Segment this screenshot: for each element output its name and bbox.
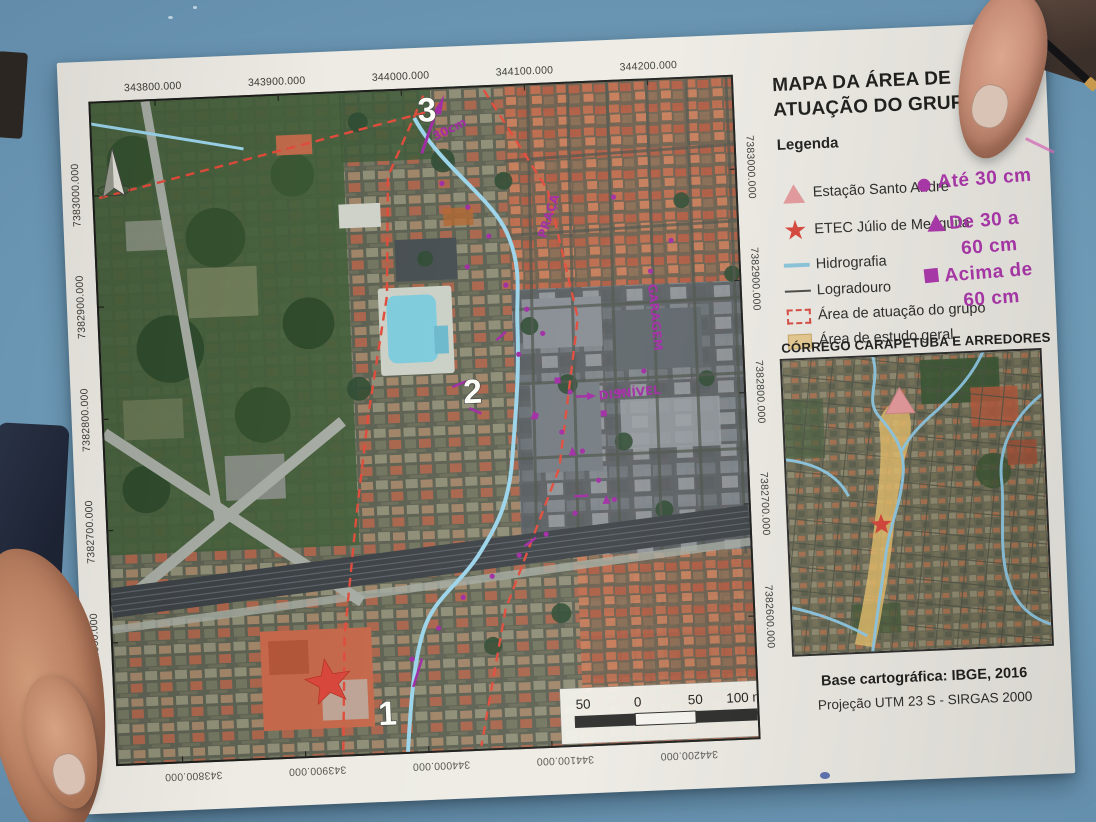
- legend-item-label: Logradouro: [817, 279, 892, 298]
- grid-label-left-3: 7382700.000: [83, 497, 98, 567]
- scale-label-1: 0: [634, 694, 642, 709]
- table-blue-mark: [820, 772, 830, 779]
- point-label-1: 1: [377, 695, 397, 734]
- grid-label-bottom-0: 343800.000: [158, 768, 228, 783]
- swimming-pool: [386, 294, 438, 364]
- grid-label-bottom-1: 343900.000: [282, 763, 352, 778]
- point-label-2: 2: [462, 373, 482, 412]
- grid-label-bottom-3: 344100.000: [530, 753, 600, 768]
- inset-map: [780, 348, 1054, 657]
- etec-star-icon: ★: [780, 220, 811, 241]
- dashed-area-icon: [784, 308, 815, 324]
- grid-label-left-0: 7383000.000: [69, 160, 84, 230]
- grid-label-top-4: 344200.000: [613, 59, 683, 74]
- grid-label-top-2: 344000.000: [365, 69, 435, 84]
- grid-label-top-1: 343900.000: [241, 74, 311, 89]
- legend-item-label: Área de atuação do grupo: [818, 300, 986, 323]
- grid-label-left-2: 7382800.000: [78, 385, 93, 455]
- hydrography-line-icon: [782, 263, 812, 268]
- legend-item-label: ETEC Júlio de Mesquita: [814, 215, 970, 237]
- grid-label-right-0: 7383000.000: [743, 132, 758, 202]
- cartographic-base-credit: Base cartográfica: IBGE, 2016: [793, 664, 1055, 691]
- main-map: 30cm PRAÇA GARAGEM DISNÍVEL 1 2 3: [88, 75, 760, 766]
- station-triangle-icon: [778, 183, 809, 203]
- map-margin-panel: MAPA DA ÁREA DE ATUAÇÃO DO GRUPO 2 Legen…: [757, 52, 1074, 773]
- table-speck: [193, 6, 197, 9]
- handwritten-note-1: Até 30 cm: [937, 165, 1033, 194]
- handwritten-square-icon: [924, 268, 939, 283]
- grid-label-bottom-2: 344000.000: [406, 758, 476, 773]
- grid-label-right-1: 7382900.000: [748, 244, 763, 314]
- table-dark-object: [0, 51, 28, 139]
- left-thumbnail: [48, 750, 89, 798]
- legend-item-label: Hidrografia: [815, 253, 887, 272]
- pen-tip: [1084, 76, 1096, 91]
- right-thumbnail: [967, 81, 1013, 132]
- grid-label-right-2: 7382800.000: [753, 357, 768, 427]
- satellite-imagery: [90, 77, 758, 764]
- point-label-3: 3: [417, 91, 437, 130]
- handwritten-note-2b: 60 cm: [960, 234, 1018, 260]
- grid-label-top-0: 343800.000: [118, 80, 188, 95]
- scale-bar: 50 0 50 100 m: [560, 680, 759, 745]
- grid-label-right-3: 7382700.000: [757, 469, 772, 539]
- grid-label-right-4: 7382600.000: [762, 581, 777, 651]
- grid-label-top-3: 344100.000: [489, 64, 559, 79]
- projection-credit: Projeção UTM 23 S - SIRGAS 2000: [794, 688, 1056, 714]
- handwritten-triangle-icon: [927, 214, 946, 232]
- grid-label-left-1: 7382900.000: [73, 272, 88, 342]
- grid-label-bottom-4: 344200.000: [654, 748, 724, 763]
- scale-label-2: 50: [688, 692, 704, 708]
- scale-label-3: 100 m: [726, 689, 759, 706]
- table-speck: [168, 16, 173, 19]
- scale-label-0: 50: [575, 696, 591, 712]
- paper-sheet: 30cm PRAÇA GARAGEM DISNÍVEL 1 2 3: [57, 22, 1076, 815]
- street-line-icon: [783, 289, 813, 293]
- legend-heading: Legenda: [776, 134, 838, 154]
- map-photo: 30cm PRAÇA GARAGEM DISNÍVEL 1 2 3: [0, 0, 1096, 822]
- handwritten-note-3b: 60 cm: [963, 286, 1021, 312]
